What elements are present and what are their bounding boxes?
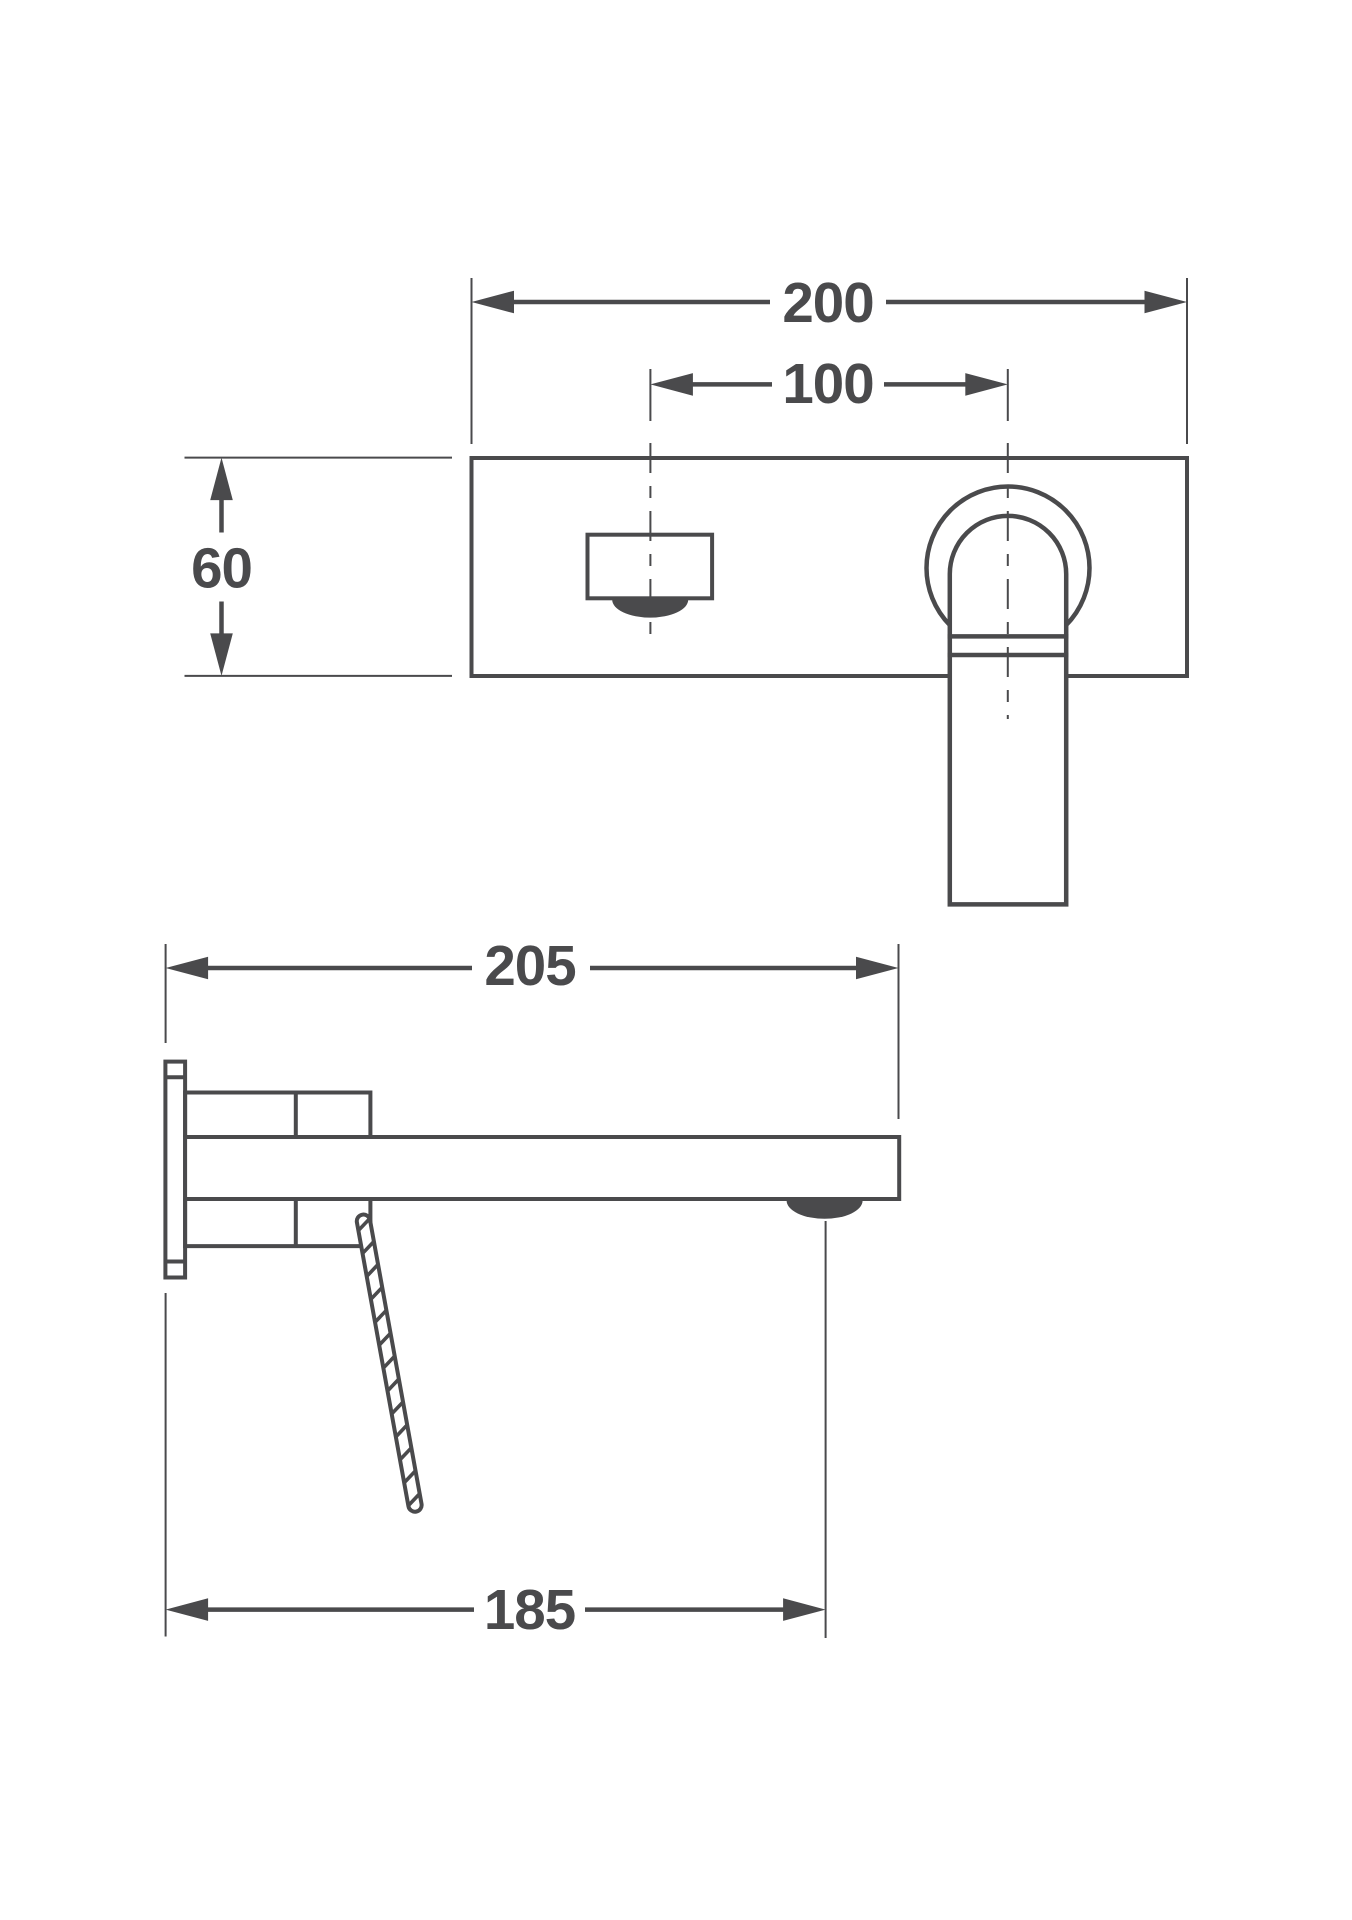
svg-text:100: 100 xyxy=(782,352,873,415)
svg-text:200: 200 xyxy=(782,271,873,334)
svg-text:60: 60 xyxy=(191,537,252,600)
svg-text:205: 205 xyxy=(484,934,575,997)
svg-text:185: 185 xyxy=(484,1578,575,1641)
